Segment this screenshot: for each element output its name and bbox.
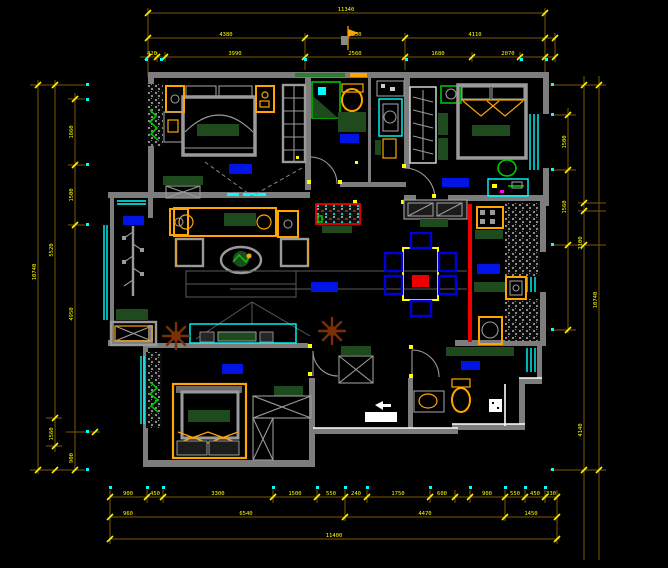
dimension-chain-bottom: 900 450 3300 1500 550 240 1750 600 900 5…	[107, 486, 560, 544]
dim-text: 1560	[562, 200, 568, 213]
dimension-chain-left: 10740 5520 1560 1860 1500 4950 900	[30, 80, 100, 474]
wardrobe-L	[253, 396, 311, 460]
water-heater	[479, 317, 502, 344]
shelf	[274, 386, 303, 396]
vanity-counter	[338, 112, 366, 132]
toilet	[452, 379, 470, 412]
nightstand-right	[256, 86, 274, 112]
side-table	[164, 112, 182, 142]
dim-text: 1500	[562, 135, 568, 148]
dimension-chain-top: 11340 4380 2850 4110 420 3990 2560 1680 …	[140, 7, 558, 77]
kitchen	[468, 203, 540, 344]
entry-mat	[365, 412, 397, 422]
dim-text: 5520	[49, 243, 55, 256]
dim-text: 450	[530, 491, 540, 497]
dim-text: 450	[150, 491, 160, 497]
counter-hatch	[505, 299, 540, 341]
shower-shelf	[313, 96, 338, 118]
dim-text: 2100	[578, 236, 584, 249]
coat-rack-plant	[122, 226, 144, 296]
room-label-bathroom-2	[461, 361, 480, 370]
bed-double	[183, 86, 255, 155]
dining-chairs	[385, 233, 456, 316]
decor-cabinet	[316, 204, 360, 224]
dim-text: 6540	[239, 511, 252, 517]
dim-text: 1680	[431, 51, 444, 57]
dimension-chain-right: 1500 1560 2100 4140 10740	[550, 76, 606, 560]
shower-head-icon	[318, 87, 326, 95]
bathroom-1	[312, 82, 366, 143]
dim-text: 4470	[418, 511, 431, 517]
dim-text: 1560	[49, 427, 55, 440]
dim-text: 2070	[501, 51, 514, 57]
dim-text: 1860	[69, 125, 75, 138]
wardrobe-grid	[283, 85, 305, 162]
wash-basin	[414, 391, 444, 412]
counter	[475, 230, 503, 239]
dim-text: 1750	[391, 491, 404, 497]
bed-double	[458, 85, 526, 158]
coffee-table	[221, 247, 261, 273]
desk-chair	[498, 160, 516, 176]
dim-text: 10740	[32, 264, 38, 281]
dim-text: 550	[510, 491, 520, 497]
dim-text: 4950	[69, 307, 75, 320]
room-label-living	[311, 282, 338, 292]
entry-arrow-icon	[375, 401, 391, 410]
tick-dots	[109, 486, 547, 489]
bed-double	[173, 384, 246, 458]
dim-text: 960	[123, 511, 133, 517]
dim-text: 600	[437, 491, 447, 497]
corridor	[339, 346, 397, 422]
bedroom-1	[147, 84, 305, 198]
room-label-balcony	[123, 216, 144, 225]
sink	[506, 277, 526, 299]
balcony	[111, 216, 156, 345]
washing-machine	[379, 99, 402, 136]
dim-text: 4140	[578, 423, 584, 436]
sideboard	[404, 200, 467, 227]
bathroom-2	[414, 347, 514, 412]
room-label-bathroom-1	[340, 134, 359, 143]
plant-pot-icon	[163, 323, 189, 349]
table-label-red	[412, 275, 429, 287]
room-label-bedroom-3	[222, 364, 243, 374]
dim-text: 550	[326, 491, 336, 497]
dim-text: 1450	[524, 511, 537, 517]
dining-room	[385, 200, 467, 316]
counter	[446, 347, 514, 356]
dim-text: 10740	[593, 292, 599, 309]
dim-text: 2560	[348, 51, 361, 57]
room-label-bedroom-1	[229, 164, 252, 174]
dim-text: 1500	[69, 188, 75, 201]
cad-floorplan: 11340 4380 2850 4110 420 3990 2560 1680 …	[0, 0, 668, 568]
counter	[474, 282, 505, 292]
room-label-bedroom-2	[442, 178, 469, 187]
dim-text: 11400	[326, 533, 343, 539]
armchair-right	[281, 239, 308, 266]
planter	[116, 309, 148, 320]
dim-text: 330	[546, 491, 556, 497]
bedroom-3	[146, 352, 311, 460]
plant-pot-icon	[319, 318, 345, 344]
dim-text: 3990	[228, 51, 241, 57]
stove	[477, 207, 503, 228]
dim-text: 4380	[219, 32, 232, 38]
room-label-kitchen	[477, 264, 500, 274]
counter-hatch	[505, 203, 540, 277]
dim-text: 3300	[211, 491, 224, 497]
cabinet	[383, 139, 396, 158]
dim-text: 900	[123, 491, 133, 497]
sliding-door-track	[468, 204, 472, 342]
tv-cabinet	[190, 324, 296, 343]
dim-text: 11340	[338, 7, 355, 13]
dim-text: 900	[69, 453, 75, 463]
shoe-cabinet	[339, 346, 373, 383]
dim-text: 420	[147, 51, 157, 57]
dining-table	[403, 248, 438, 300]
windows	[104, 114, 538, 424]
floorplan-svg: 11340 4380 2850 4110 420 3990 2560 1680 …	[0, 0, 668, 568]
dim-text: 4110	[468, 32, 481, 38]
toilet	[342, 84, 363, 111]
paper-holder	[489, 399, 502, 412]
dim-text: 240	[351, 491, 361, 497]
shelf	[322, 226, 352, 233]
utility	[375, 81, 404, 158]
armchair-left	[176, 239, 203, 266]
dim-text: 900	[482, 491, 492, 497]
sofa-set	[170, 208, 298, 237]
desk	[488, 179, 528, 196]
dim-text: 1500	[288, 491, 301, 497]
wardrobe-hangers	[410, 87, 436, 163]
